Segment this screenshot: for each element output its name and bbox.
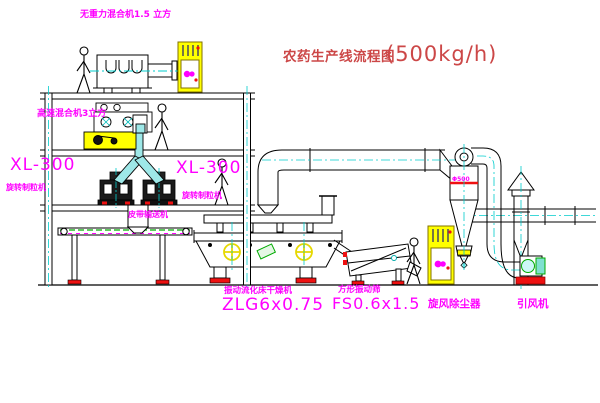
worker-top-floor <box>77 47 90 93</box>
belt-conveyor <box>58 228 192 284</box>
vibrating-sieve <box>334 240 421 285</box>
granulator-right-model: XL-300 <box>176 160 241 177</box>
cyclone-label: 旋风除尘器 <box>428 299 481 310</box>
control-cabinet-ground <box>428 226 454 284</box>
diagram-capacity: (500kg/h) <box>386 44 497 65</box>
induced-draft-fan <box>516 256 545 284</box>
flow-diagram-canvas: 农药生产线流程图 (500kg/h) 无重力混合机1.5 立方 高速混合机3立方… <box>0 0 600 403</box>
gravity-free-mixer <box>90 55 178 93</box>
granulator-left-model: XL-300 <box>10 157 75 174</box>
fan-label: 引风机 <box>517 299 549 310</box>
worker-mixer-floor <box>155 104 168 150</box>
gravity-mixer-label: 无重力混合机1.5 立方 <box>80 11 171 20</box>
granulator-right-name: 旋转制粒机 <box>182 192 222 200</box>
dryer-model-label: ZLG6x0.75 <box>222 297 324 314</box>
main-exhaust-duct <box>258 148 455 223</box>
cyclone-size-label: Φ500 <box>452 177 470 183</box>
control-cabinet-top <box>178 42 202 92</box>
fluid-bed-dryer <box>194 215 342 283</box>
side-duct <box>462 206 598 225</box>
sieve-model-label: FS0.6x1.5 <box>332 296 420 312</box>
granulator-left-name: 旋转制粒机 <box>6 184 46 192</box>
diagram-title: 农药生产线流程图 <box>283 51 395 65</box>
belt-conveyor-label: 皮带输送机 <box>128 211 168 219</box>
high-speed-mixer-label: 高速混合机3立方 <box>37 110 106 119</box>
